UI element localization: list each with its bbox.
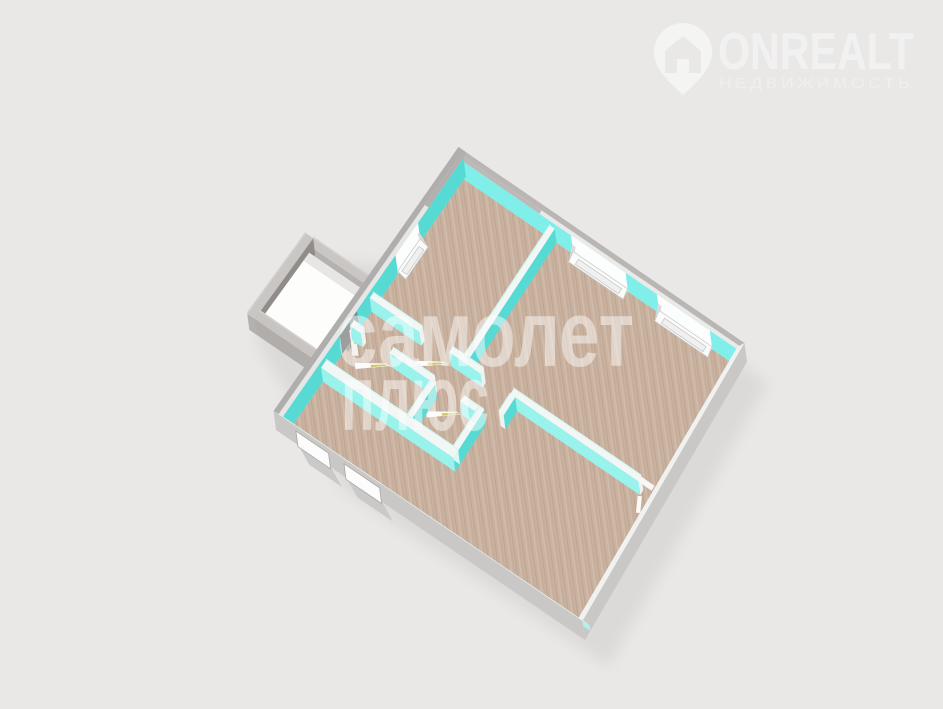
svg-text:ONREALT: ONREALT [718,23,914,81]
svg-text:плюс: плюс [341,345,489,450]
svg-text:НЕДВИЖИМОСТЬ: НЕДВИЖИМОСТЬ [719,75,913,92]
